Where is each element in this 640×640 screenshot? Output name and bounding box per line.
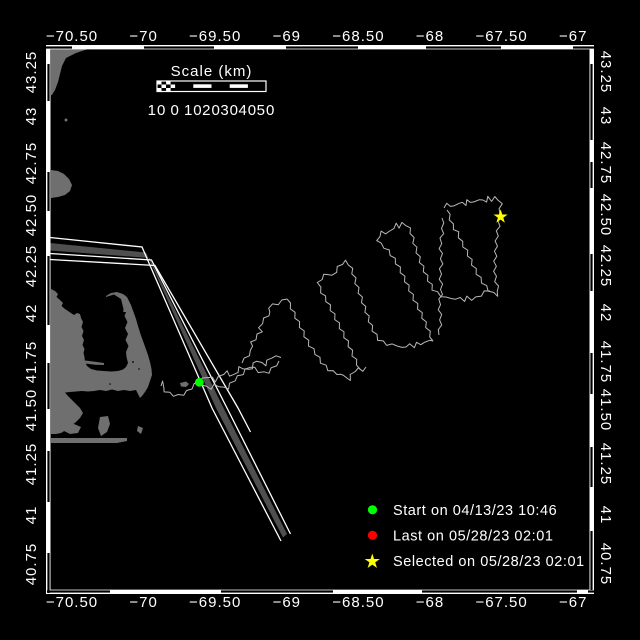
svg-text:−69.50: −69.50 <box>189 594 241 611</box>
svg-text:42: 42 <box>597 304 614 323</box>
svg-text:−67: −67 <box>559 594 587 611</box>
svg-text:Start on 04/13/23 10:46: Start on 04/13/23 10:46 <box>393 503 557 519</box>
svg-text:41.75: 41.75 <box>23 341 40 384</box>
svg-text:30: 30 <box>220 102 239 119</box>
svg-text:40.75: 40.75 <box>23 543 40 586</box>
svg-text:42.25: 42.25 <box>597 245 614 288</box>
svg-text:−69: −69 <box>273 28 301 45</box>
svg-text:−69: −69 <box>273 594 301 611</box>
svg-text:−67.50: −67.50 <box>475 594 527 611</box>
svg-text:−70: −70 <box>129 28 157 45</box>
svg-text:40.75: 40.75 <box>597 543 614 586</box>
svg-text:10: 10 <box>184 102 203 119</box>
svg-text:41.25: 41.25 <box>597 443 614 486</box>
svg-text:42.75: 42.75 <box>597 142 614 185</box>
svg-text:0: 0 <box>171 102 180 119</box>
svg-text:Scale (km): Scale (km) <box>171 63 253 80</box>
svg-text:−68: −68 <box>416 28 444 45</box>
svg-text:−67.50: −67.50 <box>475 28 527 45</box>
svg-text:43.25: 43.25 <box>597 51 614 94</box>
svg-text:−69.50: −69.50 <box>189 28 241 45</box>
svg-text:−68: −68 <box>416 594 444 611</box>
svg-text:−70.50: −70.50 <box>46 28 98 45</box>
svg-text:−70: −70 <box>129 594 157 611</box>
svg-text:42.50: 42.50 <box>23 194 40 237</box>
svg-text:−68.50: −68.50 <box>332 594 384 611</box>
svg-text:−70.50: −70.50 <box>46 594 98 611</box>
svg-text:42: 42 <box>23 304 40 323</box>
svg-text:41: 41 <box>23 506 40 525</box>
svg-text:−67: −67 <box>559 28 587 45</box>
svg-text:10: 10 <box>148 102 167 119</box>
svg-text:Last on 05/28/23 02:01: Last on 05/28/23 02:01 <box>393 529 553 545</box>
svg-text:40: 40 <box>238 102 257 119</box>
svg-text:20: 20 <box>202 102 221 119</box>
svg-text:41.50: 41.50 <box>23 389 40 432</box>
svg-text:42.50: 42.50 <box>597 194 614 237</box>
svg-text:41.50: 41.50 <box>597 389 614 432</box>
svg-text:41.25: 41.25 <box>23 443 40 486</box>
svg-text:42.25: 42.25 <box>23 245 40 288</box>
svg-text:43: 43 <box>23 107 40 126</box>
svg-text:Selected on 05/28/23 02:01: Selected on 05/28/23 02:01 <box>393 554 585 570</box>
svg-text:42.75: 42.75 <box>23 142 40 185</box>
svg-text:43: 43 <box>597 107 614 126</box>
svg-text:41.75: 41.75 <box>597 341 614 384</box>
svg-text:−68.50: −68.50 <box>332 28 384 45</box>
svg-text:50: 50 <box>257 102 276 119</box>
svg-text:43.25: 43.25 <box>23 51 40 94</box>
svg-text:41: 41 <box>597 506 614 525</box>
